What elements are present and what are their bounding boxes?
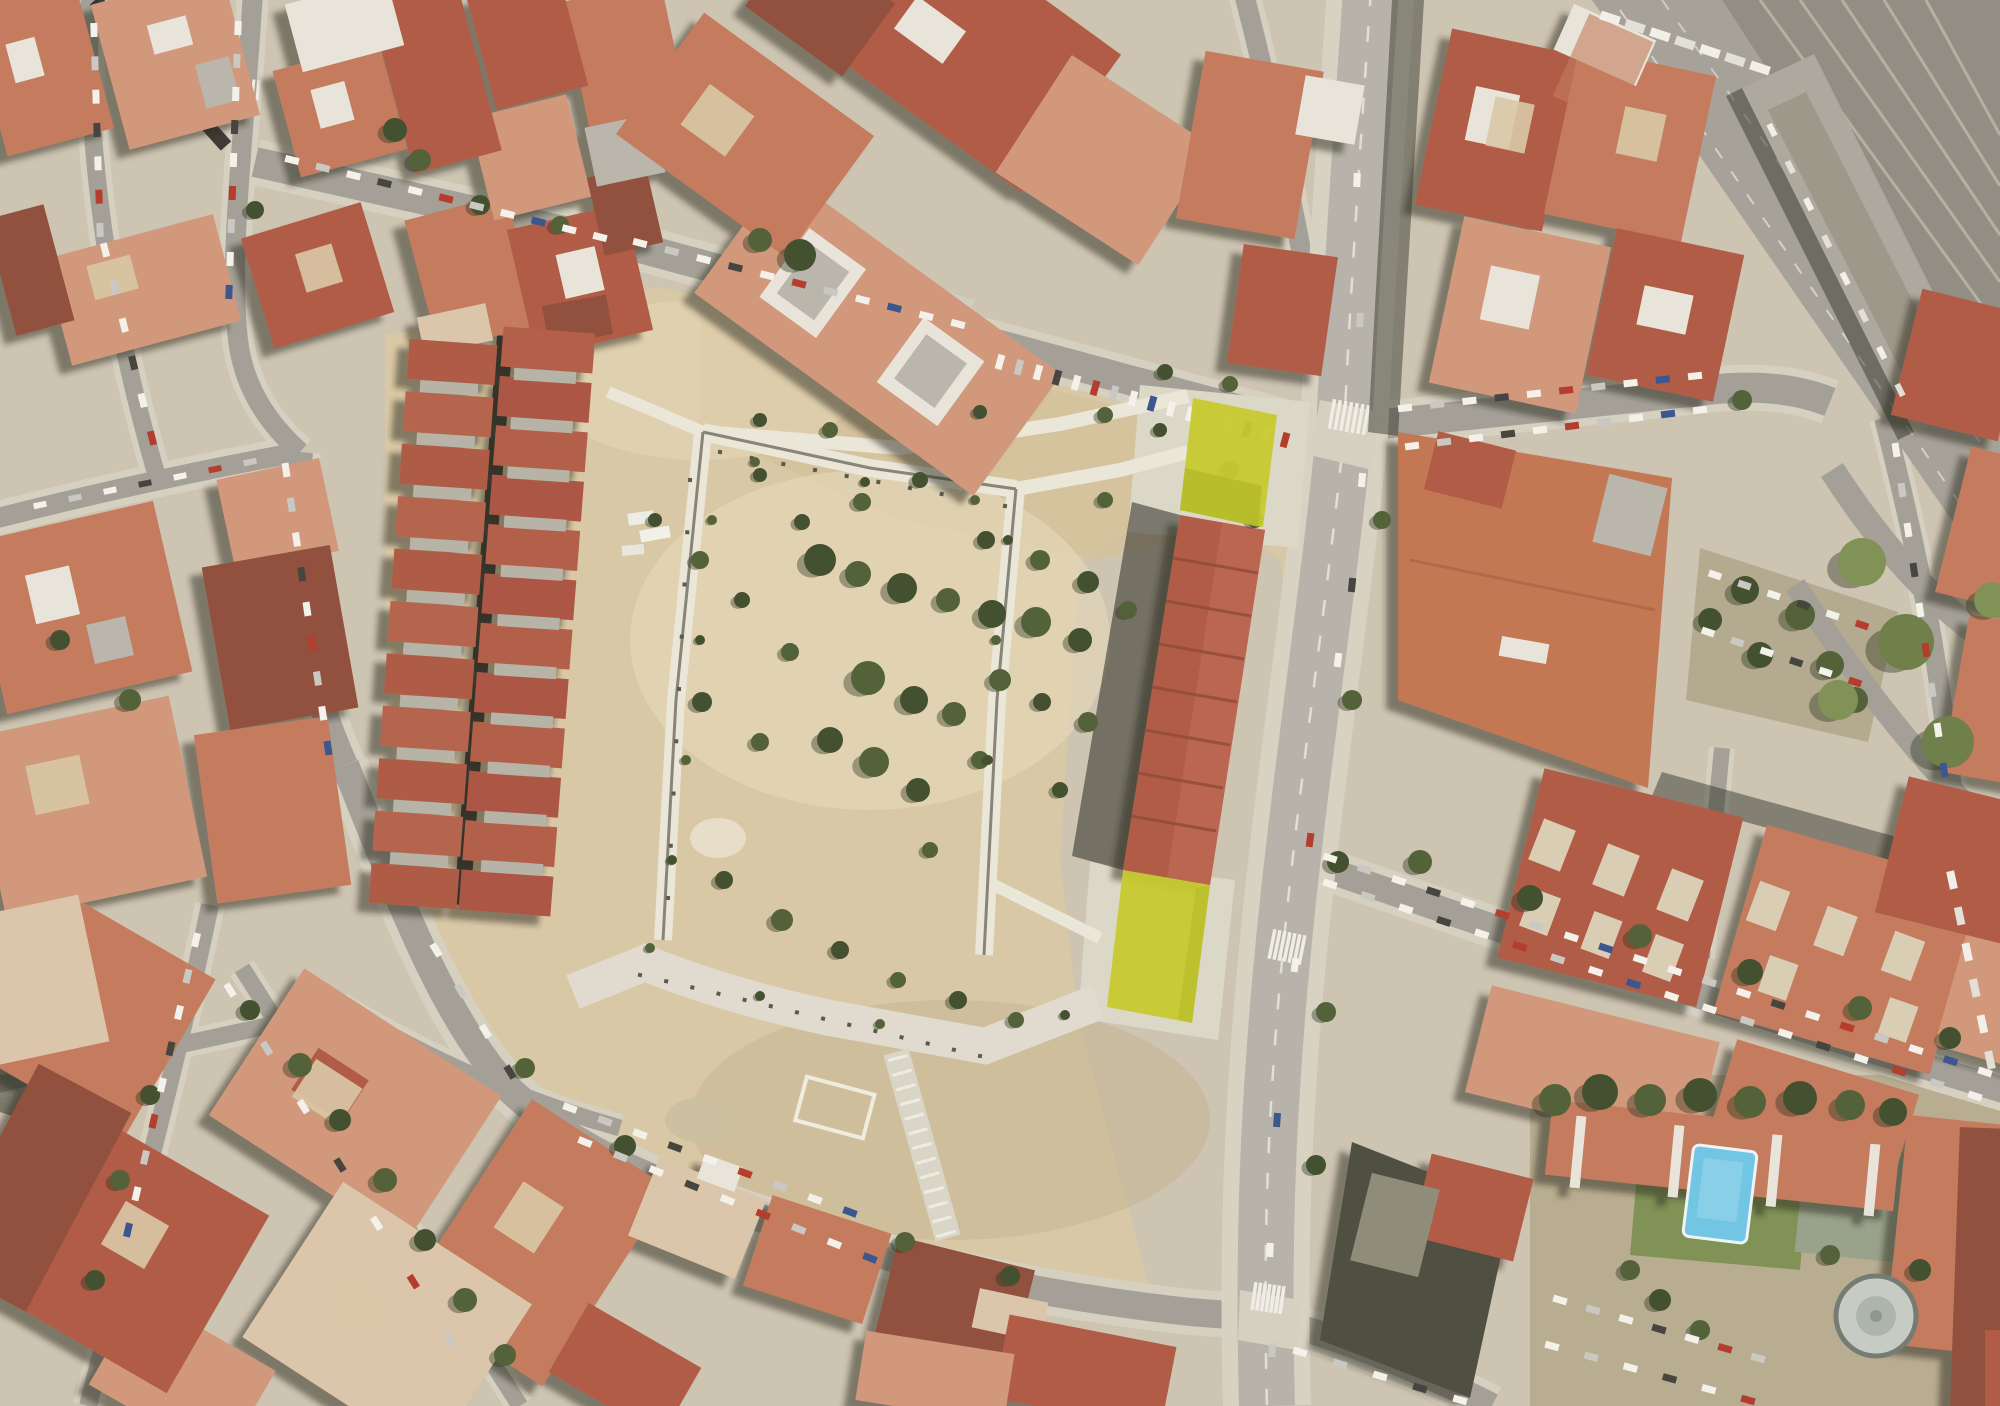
aerial-photo xyxy=(0,0,2000,1406)
screenshot-root xyxy=(0,0,2000,1406)
photo-tint xyxy=(0,0,2000,1406)
